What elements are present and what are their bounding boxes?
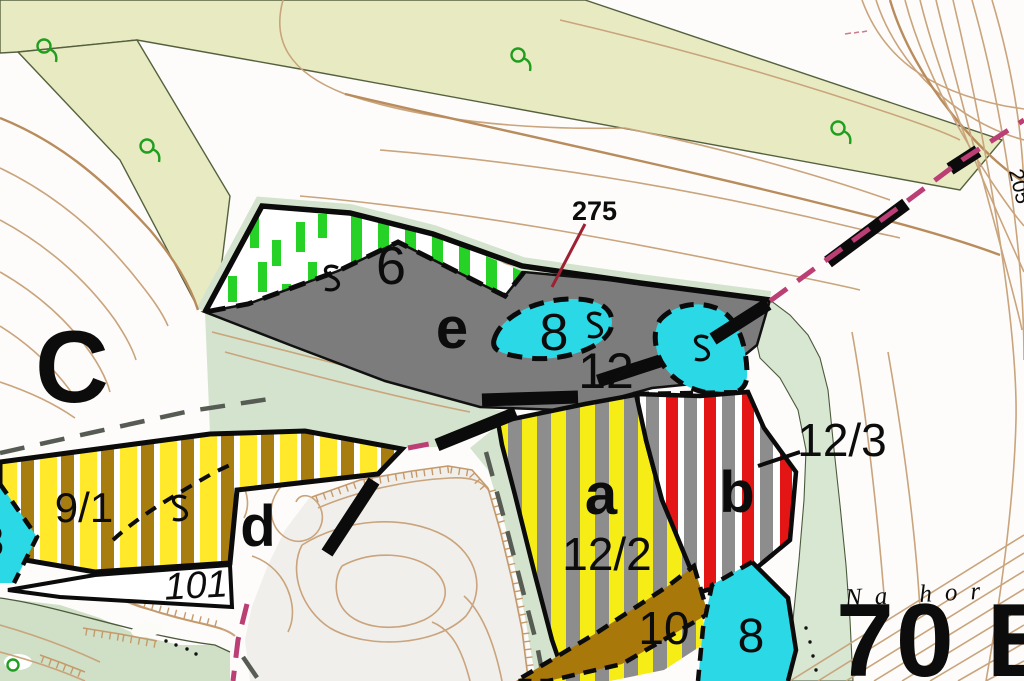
label-substand-e: e — [436, 296, 468, 361]
label-compartment-9-1: 9/1 — [55, 484, 113, 531]
label-compartment-12: 12 — [578, 343, 634, 399]
label-parcel-101: 101 — [163, 563, 229, 608]
label-substand-d: d — [240, 494, 275, 559]
label-substand-b: b — [719, 460, 754, 525]
label-stand-top-left: 0 C — [0, 310, 113, 424]
label-compartment-12-3: 12/3 — [797, 414, 887, 466]
forestry-map-canvas[interactable]: 275 6 e 8 12 a 12/2 b 12/3 10 8 9/1 101 … — [0, 0, 1024, 681]
label-cyan-bottom-8: 8 — [738, 610, 765, 663]
height-point-label: 275 — [572, 196, 617, 226]
label-substand-a: a — [585, 462, 618, 527]
label-compartment-12-2: 12/2 — [562, 528, 652, 580]
label-compartment-6: 6 — [376, 236, 406, 296]
label-cyan-lens-8: 8 — [540, 304, 569, 362]
label-compartment-10: 10 — [638, 602, 689, 654]
map-svg: 275 6 e 8 12 a 12/2 b 12/3 10 8 9/1 101 … — [0, 0, 1024, 681]
label-cyan-left-8: 8 — [0, 517, 4, 566]
label-stand-bottom-right: 70 B — [836, 583, 1024, 681]
